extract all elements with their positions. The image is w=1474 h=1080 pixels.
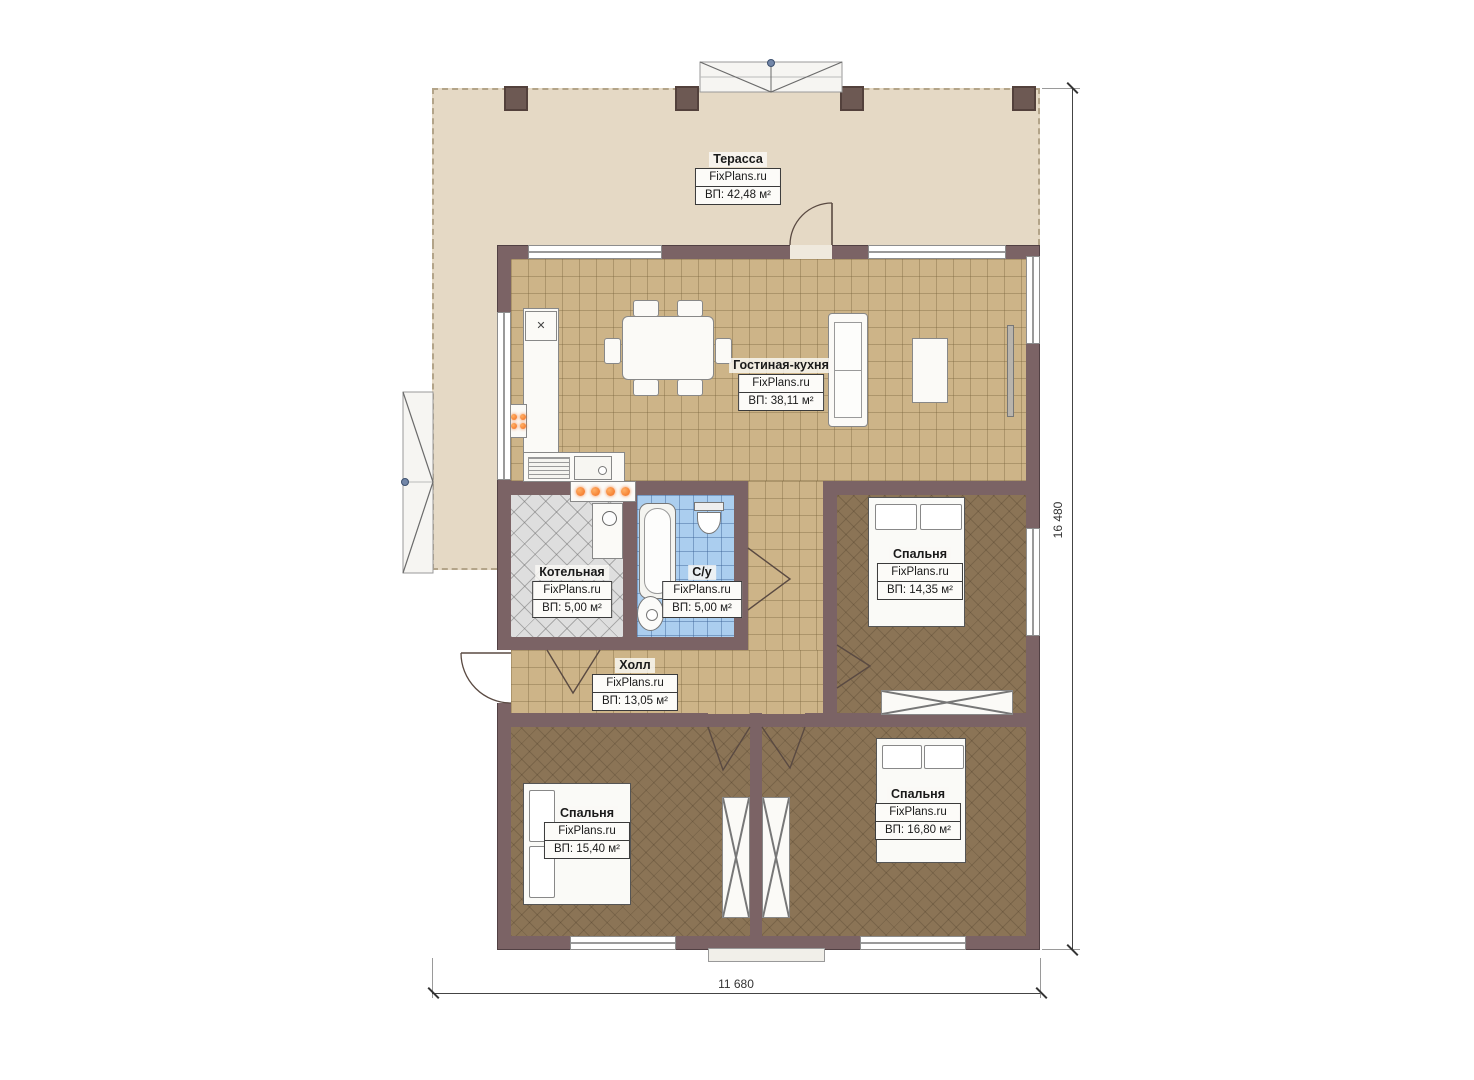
terrace-column (504, 86, 528, 111)
burner-dot (606, 487, 615, 496)
sofa (828, 313, 868, 427)
chair (604, 338, 621, 364)
room-name: Терасса (709, 152, 767, 167)
room-area: ВП: 16,80 м² (876, 821, 960, 839)
chair (677, 300, 703, 317)
wall-segment (823, 688, 837, 713)
sink-drainer (528, 457, 570, 479)
kitchen-vent-icon: ✕ (525, 311, 557, 341)
brand-watermark: FixPlans.ru (533, 582, 611, 599)
dimension-line-bottom (432, 993, 1040, 994)
wall-segment (823, 481, 1026, 495)
brand-watermark: FixPlans.ru (593, 675, 677, 692)
burner-dot (591, 487, 600, 496)
wall-segment (750, 727, 762, 936)
window (570, 936, 676, 950)
window (1026, 528, 1040, 636)
room-label-box: FixPlans.ru ВП: 16,80 м² (875, 803, 961, 840)
room-name: Спальня (889, 547, 951, 562)
brand-watermark: FixPlans.ru (696, 169, 780, 186)
brand-watermark: FixPlans.ru (545, 823, 629, 840)
window (497, 312, 511, 480)
wall-segment (511, 637, 545, 650)
room-area: ВП: 5,00 м² (663, 599, 741, 617)
room-name: С/у (688, 565, 715, 580)
room-label-hall: Холл FixPlans.ru ВП: 13,05 м² (592, 656, 678, 711)
room-name: Холл (615, 658, 654, 673)
room-label-bedroom-top-right: Спальня FixPlans.ru ВП: 14,35 м² (877, 545, 963, 600)
room-label-wc: С/у FixPlans.ru ВП: 5,00 м² (662, 563, 742, 618)
coffee-table (912, 338, 948, 403)
burner-dot (511, 414, 517, 420)
wardrobe (762, 797, 790, 918)
room-label-box: FixPlans.ru ВП: 13,05 м² (592, 674, 678, 711)
pillow (924, 745, 964, 769)
brand-watermark: FixPlans.ru (739, 375, 822, 392)
burner-dot (621, 487, 630, 496)
room-area: ВП: 15,40 м² (545, 840, 629, 858)
stove-burners (570, 481, 636, 502)
terrace-column (1012, 86, 1036, 111)
window (1026, 256, 1040, 344)
room-label-box: FixPlans.ru ВП: 5,00 м² (662, 581, 742, 618)
room-label-box: FixPlans.ru ВП: 14,35 м² (877, 563, 963, 600)
sink-basin (574, 456, 612, 480)
chair (677, 379, 703, 396)
wardrobe (722, 797, 750, 918)
room-label-living: Гостиная-кухня FixPlans.ru ВП: 38,11 м² (729, 356, 833, 411)
room-label-bedroom-bottom-right: Спальня FixPlans.ru ВП: 16,80 м² (875, 785, 961, 840)
room-area: ВП: 42,48 м² (696, 186, 780, 204)
wall-segment (600, 637, 748, 650)
kitchen-sink-unit (523, 452, 625, 482)
dimension-height-label: 16 480 (1051, 492, 1065, 548)
room-label-box: FixPlans.ru ВП: 42,48 м² (695, 168, 781, 205)
room-area: ВП: 13,05 м² (593, 692, 677, 710)
room-area: ВП: 5,00 м² (533, 599, 611, 617)
burner-dot (576, 487, 585, 496)
chair (633, 300, 659, 317)
room-label-boiler: Котельная FixPlans.ru ВП: 5,00 м² (532, 563, 612, 618)
burner-dot (520, 414, 526, 420)
floor-plan: ✕ (0, 0, 1474, 1080)
window (868, 245, 1006, 259)
room-label-box: FixPlans.ru ВП: 15,40 м² (544, 822, 630, 859)
wall-segment (511, 713, 708, 727)
terrace-column (675, 86, 699, 111)
burner-dot (511, 423, 517, 429)
wall-segment (805, 713, 1026, 727)
wall-segment (623, 495, 637, 637)
chair (633, 379, 659, 396)
wall-segment (823, 495, 837, 645)
room-name: Спальня (887, 787, 949, 802)
room-name: Котельная (535, 565, 608, 580)
wardrobe (881, 690, 1013, 715)
dimension-line-right (1072, 88, 1073, 950)
window (860, 936, 966, 950)
room-area: ВП: 38,11 м² (739, 392, 822, 410)
pillow (882, 745, 922, 769)
burner-dot (520, 423, 526, 429)
rear-window-sill (708, 948, 825, 962)
toilet (694, 502, 724, 536)
boiler-circle (602, 511, 617, 526)
room-area: ВП: 14,35 м² (878, 581, 962, 599)
terrace-door-gap (790, 245, 832, 259)
window (528, 245, 662, 259)
wall-segment (734, 495, 748, 548)
sofa-seat (834, 322, 862, 418)
room-name: Спальня (556, 806, 618, 821)
room-label-box: FixPlans.ru ВП: 5,00 м² (532, 581, 612, 618)
room-label-terrace: Терасса FixPlans.ru ВП: 42,48 м² (695, 150, 781, 205)
brand-watermark: FixPlans.ru (878, 564, 962, 581)
washbasin (637, 596, 664, 631)
toilet-tank (694, 502, 724, 511)
brand-watermark: FixPlans.ru (876, 804, 960, 821)
room-label-bedroom-bottom-left: Спальня FixPlans.ru ВП: 15,40 м² (544, 804, 630, 859)
terrace-side-area (432, 243, 497, 570)
tv-unit (1007, 325, 1014, 417)
entrance-door-gap (497, 650, 511, 703)
side-steps-marker (402, 392, 434, 573)
terrace-column (840, 86, 864, 111)
room-name: Гостиная-кухня (729, 358, 833, 373)
pillow (920, 504, 962, 530)
brand-watermark: FixPlans.ru (663, 582, 741, 599)
boiler-unit (592, 503, 623, 559)
toilet-bowl (697, 512, 721, 534)
wall-segment (750, 713, 762, 727)
cooktop-burners (509, 404, 527, 438)
pillow (875, 504, 917, 530)
dining-table (622, 316, 714, 380)
dimension-width-label: 11 680 (691, 977, 781, 991)
room-label-box: FixPlans.ru ВП: 38,11 м² (738, 374, 823, 411)
